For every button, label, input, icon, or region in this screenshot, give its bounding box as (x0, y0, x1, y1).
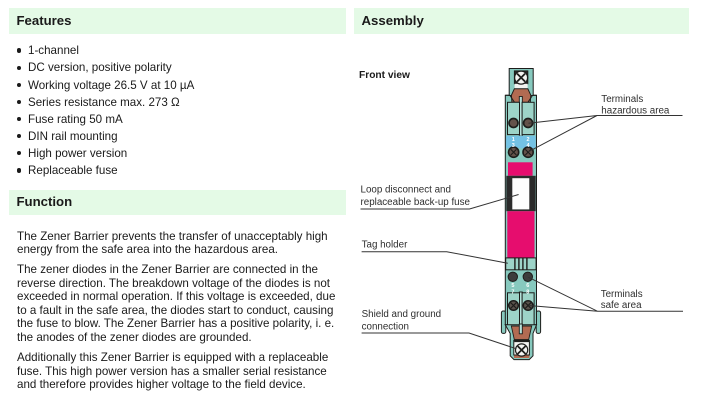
svg-text:Terminals: Terminals (601, 289, 643, 300)
svg-text:replaceable back-up fuse: replaceable back-up fuse (361, 197, 471, 208)
svg-text:5: 5 (511, 283, 514, 289)
svg-text:8: 8 (526, 289, 529, 295)
svg-text:Terminals: Terminals (601, 94, 643, 105)
svg-text:3: 3 (512, 143, 515, 149)
svg-text:Shield and ground: Shield and ground (362, 309, 442, 320)
svg-text:hazardous area: hazardous area (601, 106, 670, 117)
svg-text:7: 7 (511, 289, 514, 295)
svg-text:Tag holder: Tag holder (362, 240, 408, 251)
svg-text:safe area: safe area (601, 300, 642, 311)
svg-text:6: 6 (526, 283, 529, 289)
svg-text:Loop disconnect and: Loop disconnect and (361, 184, 451, 195)
svg-text:connection: connection (362, 321, 409, 332)
